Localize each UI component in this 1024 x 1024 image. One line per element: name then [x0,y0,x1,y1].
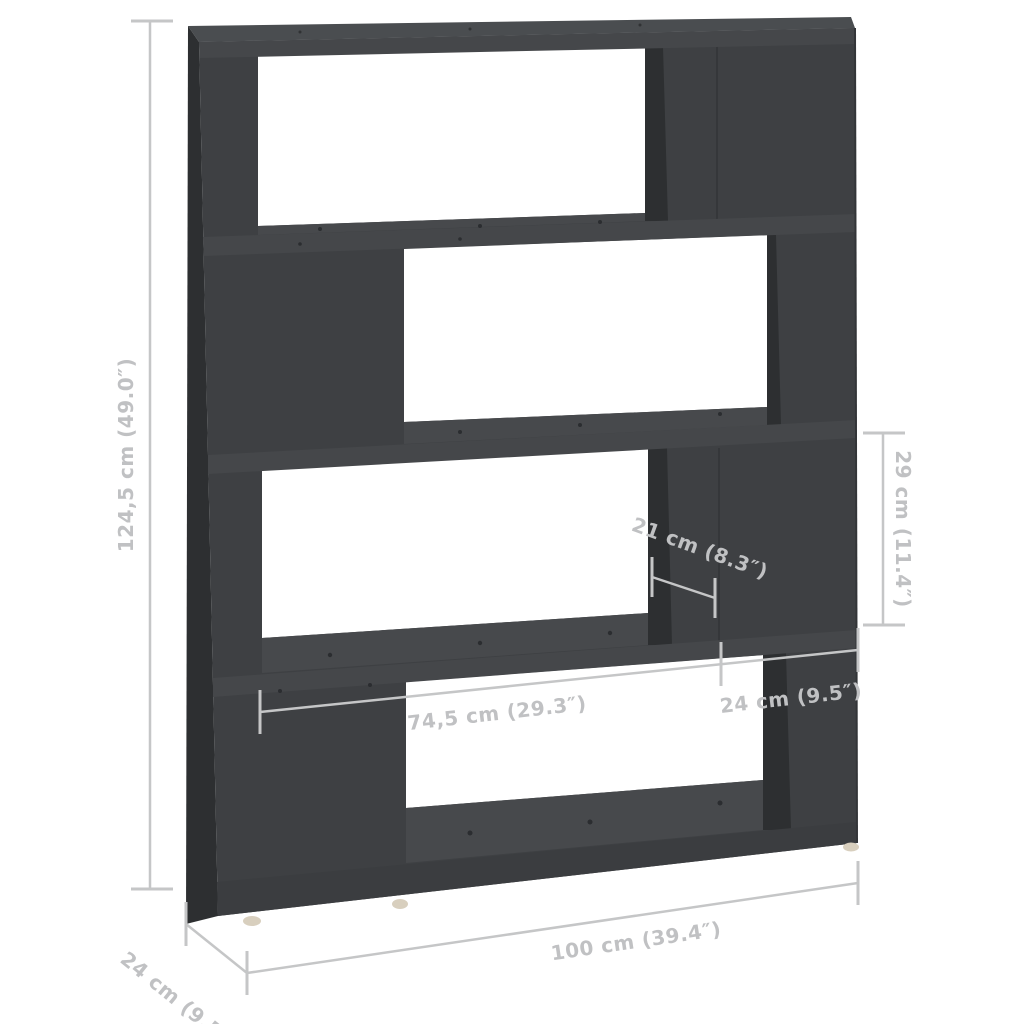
foot-middle [392,899,408,909]
bookcase-dimension-figure: 124,5 cm (49.0″) 24 cm (9.5″) 100 cm (39… [0,0,1024,1024]
tier2-open-compartment [404,235,767,422]
bookcase-illustration [186,17,859,926]
foot-left [243,916,261,926]
compartment-height-label: 29 cm (11.4″) [891,450,915,608]
dim-overall-height: 124,5 cm (49.0″) [114,21,173,889]
overall-height-label: 124,5 cm (49.0″) [114,358,138,552]
product-diagram-canvas: 124,5 cm (49.0″) 24 cm (9.5″) 100 cm (39… [0,0,1024,1024]
overall-depth-label: 24 cm (9.5″) [116,947,242,1024]
tier3-open-compartment [262,449,648,638]
foot-right [843,843,859,852]
tier1-open-compartment [258,48,645,226]
dim-line [186,924,247,973]
dim-overall-depth: 24 cm (9.5″) [116,902,247,1024]
dim-compartment-height: 29 cm (11.4″) [863,433,915,625]
